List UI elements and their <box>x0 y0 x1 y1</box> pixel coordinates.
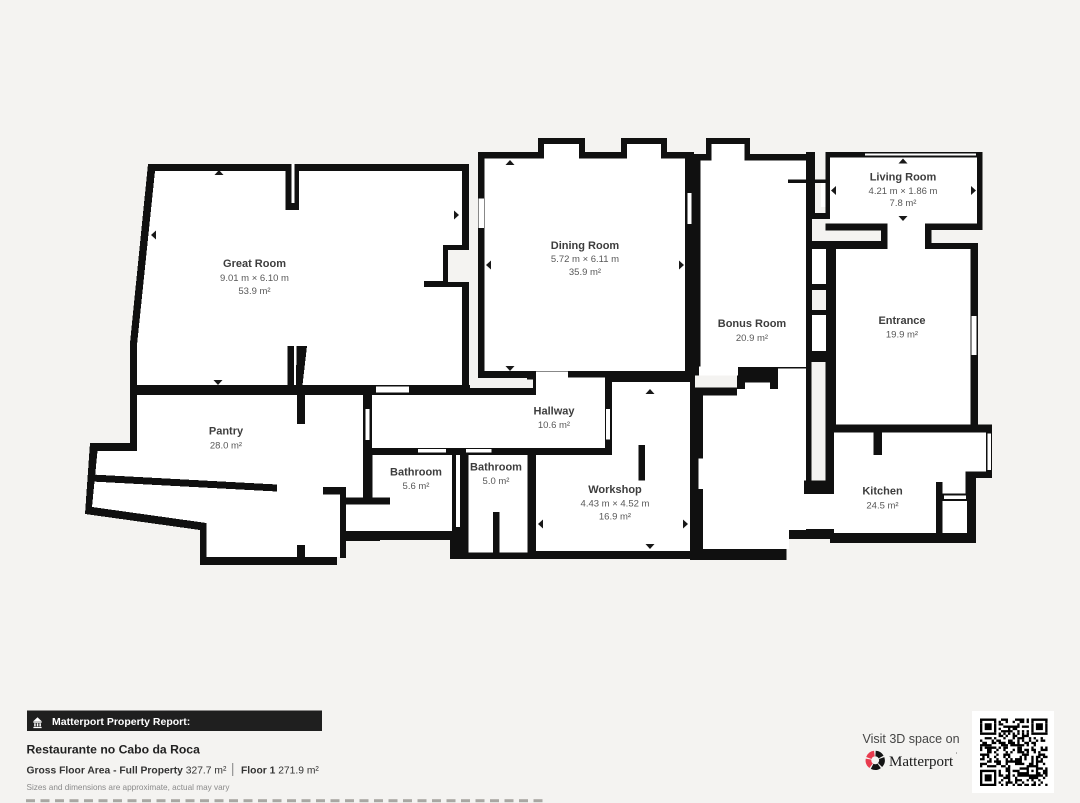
svg-text:Entrance: Entrance <box>878 315 925 327</box>
svg-text:9.01 m × 6.10 m: 9.01 m × 6.10 m <box>220 273 289 284</box>
svg-text:Bathroom: Bathroom <box>390 467 442 479</box>
svg-text:Sizes and dimensions are appro: Sizes and dimensions are approximate, ac… <box>27 783 231 792</box>
svg-text:Matterport Property Report:: Matterport Property Report: <box>52 716 190 728</box>
svg-text:35.9 m²: 35.9 m² <box>569 267 601 278</box>
svg-text:Living Room: Living Room <box>870 172 937 184</box>
svg-text:53.9 m²: 53.9 m² <box>238 286 270 297</box>
svg-text:Hallway: Hallway <box>534 406 576 418</box>
svg-text:4.43 m × 4.52 m: 4.43 m × 4.52 m <box>581 499 650 510</box>
svg-text:7.8 m²: 7.8 m² <box>890 198 917 209</box>
svg-text:Kitchen: Kitchen <box>862 486 903 498</box>
svg-text:5.0 m²: 5.0 m² <box>483 476 510 487</box>
svg-text:’: ’ <box>956 753 957 759</box>
svg-text:10.6 m²: 10.6 m² <box>538 420 570 431</box>
svg-text:Bathroom: Bathroom <box>470 462 522 474</box>
svg-text:Bonus Room: Bonus Room <box>718 318 787 330</box>
svg-text:4.21 m × 1.86 m: 4.21 m × 1.86 m <box>869 186 938 197</box>
svg-text:20.9 m²: 20.9 m² <box>736 333 768 344</box>
svg-text:16.9 m²: 16.9 m² <box>599 512 631 523</box>
svg-text:Restaurante no Cabo da Roca: Restaurante no Cabo da Roca <box>27 743 201 757</box>
svg-text:Matterport: Matterport <box>889 754 954 770</box>
svg-text:Workshop: Workshop <box>588 484 642 496</box>
svg-text:Dining Room: Dining Room <box>551 240 620 252</box>
svg-text:28.0 m²: 28.0 m² <box>210 441 242 452</box>
svg-text:19.9 m²: 19.9 m² <box>886 330 918 341</box>
svg-text:5.72 m × 6.11 m: 5.72 m × 6.11 m <box>551 254 619 265</box>
svg-text:Visit 3D space on: Visit 3D space on <box>862 732 959 746</box>
svg-text:Floor 1 271.9 m²: Floor 1 271.9 m² <box>241 766 319 777</box>
svg-text:Pantry: Pantry <box>209 426 244 438</box>
svg-text:Gross Floor Area - Full Proper: Gross Floor Area - Full Property 327.7 m… <box>27 766 227 777</box>
svg-text:24.5 m²: 24.5 m² <box>866 501 898 512</box>
svg-text:5.6 m²: 5.6 m² <box>403 481 430 492</box>
svg-text:Great Room: Great Room <box>223 258 286 270</box>
